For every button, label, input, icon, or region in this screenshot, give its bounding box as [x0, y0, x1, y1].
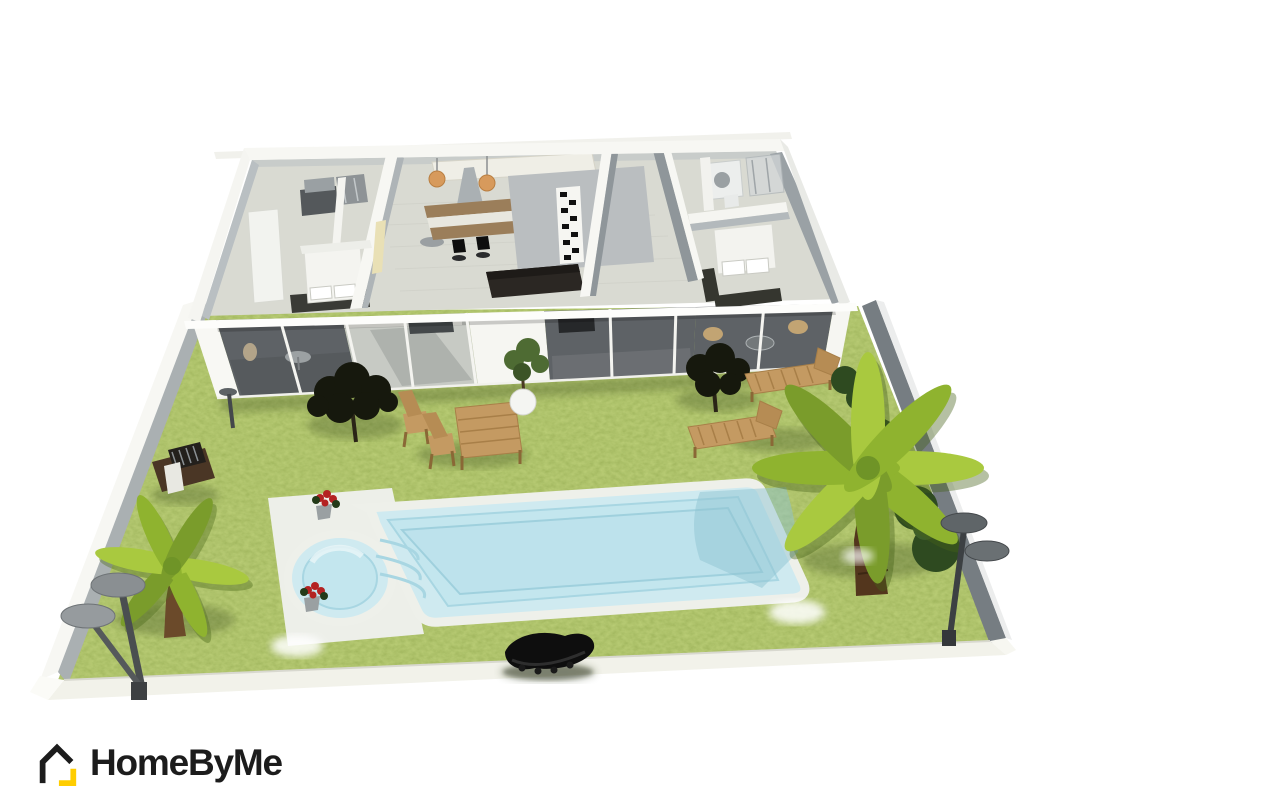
3d-viewport[interactable]	[0, 0, 1280, 800]
pendant-light[interactable]	[429, 171, 445, 187]
white-round-pot	[510, 389, 536, 415]
homebyme-house-icon	[34, 740, 80, 786]
pillow	[334, 284, 356, 298]
rattan-chair	[703, 327, 723, 341]
bathroom-sink	[724, 194, 739, 208]
homebyme-logo: HomeByMe	[34, 740, 282, 786]
pillow	[722, 260, 745, 276]
decor-column[interactable]	[556, 186, 584, 264]
3d-scene-canvas[interactable]	[0, 0, 1280, 800]
pendant-light[interactable]	[479, 175, 495, 191]
pillow	[746, 258, 769, 274]
logo-text: HomeByMe	[90, 742, 282, 784]
rattan-chair	[788, 320, 808, 334]
washer-door	[714, 172, 730, 188]
black-lounger[interactable]	[503, 633, 594, 680]
pillow	[310, 286, 332, 300]
homebyme-app-window: HomeByMe	[0, 0, 1280, 800]
vase	[243, 343, 257, 361]
wardrobe[interactable]	[248, 209, 284, 303]
